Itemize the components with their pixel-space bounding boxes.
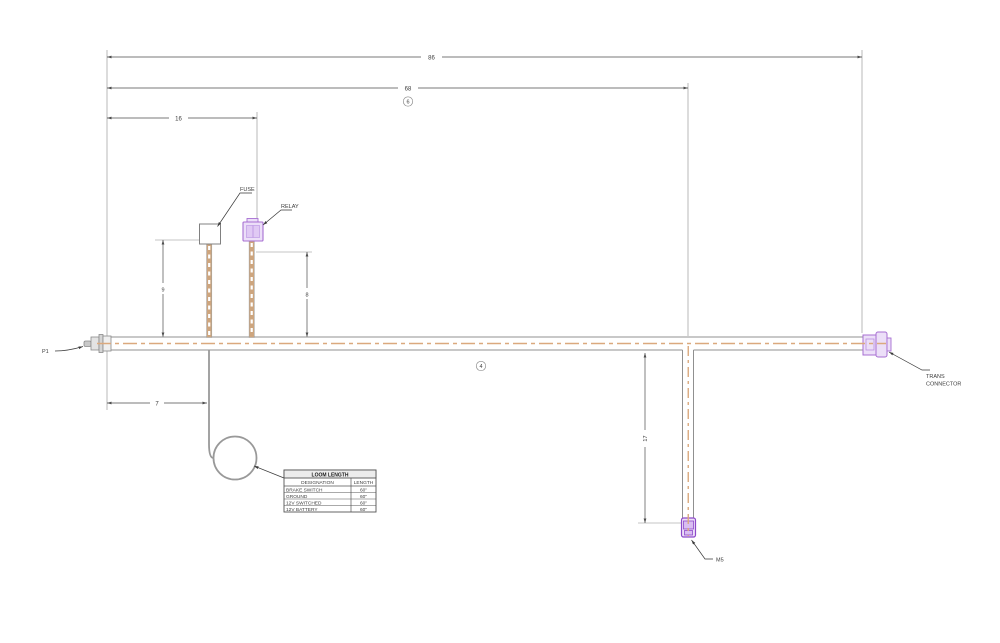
fuse-label: FUSE [240, 187, 255, 193]
left-connector-label: P1 [42, 349, 49, 355]
drawing-canvas: 86 68 6 16 9 8 7 17 [0, 0, 1000, 643]
dimension-to-drop: 68 6 [107, 83, 688, 107]
relay-label: RELAY [281, 204, 299, 210]
balloon-middle-value: 4 [479, 364, 482, 370]
harness-centerlines [97, 344, 886, 537]
trans-connector-callout: TRANS CONNECTOR [889, 352, 961, 388]
trans-connector [863, 332, 891, 357]
table-leader-line [254, 466, 284, 478]
dim-overall-value: 86 [428, 56, 435, 62]
relay-component [243, 219, 263, 242]
fuse-lead-wire [207, 243, 212, 338]
table-cell-length: 60" [360, 500, 367, 506]
table-cell-designation: 12V BATTERY [286, 507, 318, 513]
dimension-fuse-lead: 9 [159, 240, 168, 337]
dim-drop-length-value: 17 [643, 435, 649, 441]
dim-fuse-lead-value: 9 [161, 288, 164, 294]
relay-lead-wire [249, 240, 254, 338]
dimension-relay-lead: 8 [303, 252, 312, 337]
table-cell-designation: GROUND [286, 494, 308, 500]
dimension-loop-offset: 7 [107, 398, 207, 408]
dimension-to-relay: 16 [107, 113, 257, 123]
dimension-overall: 86 [107, 52, 862, 62]
drop-connector-label: M5 [716, 558, 724, 564]
dim-relay-lead-value: 8 [305, 293, 308, 299]
table-cell-designation: 12V SWITCHED [286, 500, 322, 506]
drop-connector-callout: M5 [692, 540, 724, 564]
balloon-middle: 4 [476, 361, 485, 370]
table-header-length: LENGTH [354, 480, 374, 486]
trans-connector-label-line2: CONNECTOR [926, 382, 961, 388]
trans-connector-label-line1: TRANS [926, 374, 945, 380]
dim-to-drop-value: 68 [405, 87, 412, 93]
table-header-designation: DESIGNATION [301, 480, 334, 486]
fuse-holder [200, 224, 221, 244]
loom-length-table: LOOM LENGTH DESIGNATION LENGTH BRAKE SWI… [284, 470, 376, 513]
table-cell-designation: BRAKE SWITCH [286, 487, 323, 493]
table-title: LOOM LENGTH [312, 472, 349, 478]
drawing-sheet: 86 68 6 16 9 8 7 17 [0, 0, 1000, 643]
relay-callout: RELAY [263, 204, 299, 225]
table-cell-length: 60" [360, 494, 367, 500]
coiled-lead-loop [209, 350, 257, 480]
left-connector-callout: P1 [42, 347, 83, 356]
extension-lines [107, 50, 862, 523]
table-cell-length: 60" [360, 507, 367, 513]
dim-to-relay-value: 16 [175, 117, 182, 123]
balloon-top-value: 6 [406, 100, 409, 106]
table-cell-length: 60" [360, 487, 367, 493]
dimension-drop-length: 17 [641, 353, 650, 523]
